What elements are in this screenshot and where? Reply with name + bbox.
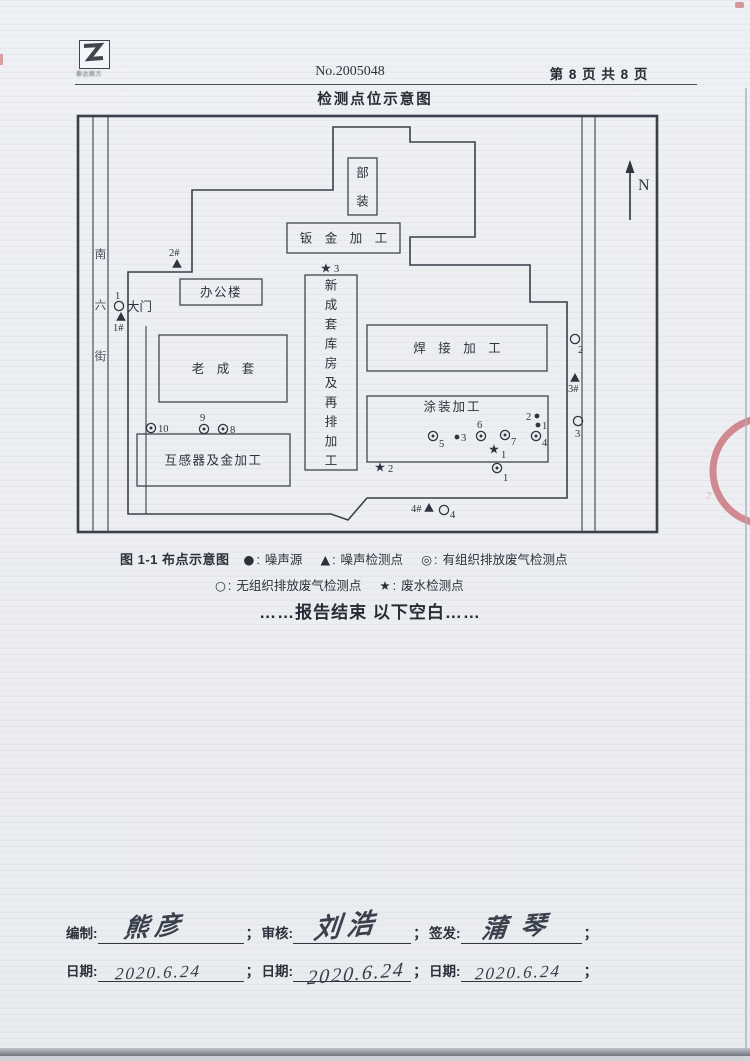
signoff-roles-row: 编制:熊彦；审核:刘浩；签发:蒲琴； [66,918,600,944]
role-label-1: 审核: [262,922,294,944]
north-arrow-head [626,160,635,173]
marker-circle: 1 [114,291,123,311]
open-circle-marker [439,505,448,514]
stamp-mark: 7 [704,490,712,503]
page-edge-right [745,88,747,1050]
marker-label: 2 [578,345,583,356]
role-label-2: 签发: [429,922,461,944]
street-name-char: 南 [95,247,107,261]
building-label: 办公楼 [200,285,242,300]
marker-dot: 3 [455,433,467,444]
date-line-0: 2020.6.24 [98,955,244,982]
marker-label: 4# [411,504,422,515]
building: 办公楼 [180,279,262,305]
marker-label: 3# [568,384,579,395]
marker-label: 1 [501,450,506,461]
legend-symbol: ● [244,552,255,567]
marker-label: 4 [450,510,456,521]
signature-line-1: 刘浩 [293,917,411,944]
separator: ； [244,922,262,944]
building: 焊 接 加 工 [367,325,547,371]
marker-label: 1 [503,473,508,484]
marker-label: 6 [477,420,482,431]
legend-label: 噪声检测点 [341,553,404,567]
building-label-char: 工 [325,454,338,468]
legend-item-2: ◎:有组织排放废气检测点 [421,553,567,567]
page-edge-bottom-shadow [0,1056,750,1061]
building-label-char: 及 [325,376,338,390]
marker-label: 8 [230,425,235,436]
building-label: 涂装加工 [423,399,481,414]
handwritten-date-0: 2020.6.24 [114,961,201,984]
building-label: 钣 金 加 工 [300,231,388,246]
red-stamp-arc: 17 [704,418,750,524]
double-circle-center [432,435,435,438]
triangle-marker [172,259,182,268]
double-circle-center [480,435,483,438]
marker-circle: 2 [570,334,583,356]
legend-label: 噪声源 [265,553,303,567]
marker-dcircle: 7 [500,430,516,448]
building: 涂装加工 [367,396,548,462]
legend-item-3: ○:无组织排放废气检测点 [215,579,361,593]
building: 新成套库房及再排加工 [305,275,357,470]
building: 老 成 套 [159,335,287,402]
building-label: 焊 接 加 工 [413,341,501,356]
handwritten-date-2: 2020.6.24 [474,961,561,984]
marker-star: ★3 [320,262,339,277]
marker-circle: 4 [439,505,456,521]
star-marker: ★ [374,461,386,476]
marker-label: 7 [511,437,516,448]
date-line-2: 2020.6.24 [461,955,582,982]
role-label-0: 编制: [66,922,98,944]
separator: ； [244,960,262,982]
legend-symbol: ◎ [421,552,432,567]
marker-triangle: 2# [169,248,182,268]
legend-symbol: ▲ [320,552,330,567]
separator: ； [411,922,429,944]
legend-label: 无组织排放废气检测点 [236,579,361,593]
triangle-marker [570,373,580,382]
marker-dcircle: 9 [199,413,208,434]
building-label: 互感器及金加工 [164,453,262,468]
marker-dcircle: 1 [492,463,508,484]
gate-label: 大门 [127,299,152,314]
legend-item-0: ●:噪声源 [244,553,303,567]
legend-colon: : [332,553,335,567]
separator: ； [411,960,429,982]
legend-colon: : [256,553,259,567]
building-label-char: 排 [325,415,338,429]
marker-label: 5 [439,439,444,450]
legend-label: 有组织排放废气检测点 [442,553,567,567]
building-label-char: 套 [325,316,338,331]
marker-label: 1 [115,291,120,302]
page-edge-bottom [0,1048,750,1056]
marker-dcircle: 5 [428,431,444,450]
handwritten-signature-2: 蒲琴 [480,904,562,946]
handwritten-signature-1: 刘浩 [312,900,382,947]
signoff-dates-row: 日期:2020.6.24；日期:2020.6.24；日期:2020.6.24； [66,956,600,982]
street-name-char: 街 [95,349,107,363]
figure-caption: 图 1-1 布点示意图 [120,552,230,567]
building-label-char: 成 [325,298,338,312]
marker-label: 3 [461,433,466,444]
legend-label: 废水检测点 [401,579,464,593]
building-label-char: 再 [325,395,338,409]
marker-dot: 2 [526,412,539,423]
double-circle-center [496,467,499,470]
separator: ； [582,922,600,944]
street-name-char: 六 [95,299,107,312]
building-label-char: 部 [356,165,369,180]
building-label-char: 新 [325,277,338,292]
noise-source-dot [535,414,540,419]
star-marker: ★ [488,443,500,458]
legend-item-4: ★:废水检测点 [379,579,463,593]
building: 部装 [348,158,377,215]
marker-triangle: 4# [411,503,434,515]
marker-label: 10 [158,424,169,435]
open-circle-marker [114,301,123,310]
marker-label: 2 [388,464,393,475]
legend-row-2: ○:无组织排放废气检测点★:废水检测点 [215,575,482,594]
marker-dot: 1 [536,421,548,432]
noise-source-dot [455,435,460,440]
marker-label: 4 [542,438,548,449]
building: 钣 金 加 工 [287,223,400,253]
building: 互感器及金加工 [137,434,290,486]
noise-source-dot [536,423,541,428]
open-circle-marker [570,334,579,343]
signature-line-2: 蒲琴 [461,917,582,944]
double-circle-center [222,428,225,431]
open-circle-marker [573,416,582,425]
handwritten-signature-0: 熊彦 [122,905,188,946]
scan-red-mark-left [0,54,3,65]
marker-label: 2 [526,412,531,423]
marker-label: 3 [575,429,580,440]
legend-colon: : [228,579,231,593]
separator: ； [582,960,600,982]
double-circle-center [150,427,153,430]
marker-dcircle: 4 [531,431,548,449]
legend-symbol: ★ [379,578,390,593]
end-of-report-note: ……报告结束 以下空白…… [0,598,740,623]
marker-label: 9 [200,413,205,424]
marker-label: 3 [334,264,339,275]
building-label-char: 加 [325,434,338,448]
legend-symbol: ○ [215,578,226,593]
marker-triangle: 1# [113,312,126,334]
marker-dcircle: 10 [146,423,168,435]
marker-triangle: 3# [568,373,580,395]
date-line-1: 2020.6.24 [293,955,411,982]
triangle-marker [116,312,126,321]
marker-dcircle: 6 [476,420,485,441]
date-label-0: 日期: [66,960,98,982]
building-label-char: 房 [325,355,338,370]
north-label: N [638,177,650,194]
legend-colon: : [393,579,396,593]
marker-star: ★2 [374,461,393,476]
date-label-2: 日期: [429,960,461,982]
building-label-char: 装 [356,194,369,208]
building-label: 老 成 套 [192,361,255,376]
triangle-marker [424,503,434,512]
marker-label: 1 [542,421,547,432]
star-marker: ★ [320,262,332,277]
double-circle-center [203,428,206,431]
legend-item-1: ▲:噪声检测点 [320,553,403,567]
scanned-page: 泰达图方 No.2005048 第 8 页 共 8 页 检测点位示意图 南六街部… [0,0,750,1061]
scan-red-mark-corner [735,2,744,8]
marker-label: 1# [113,323,124,334]
legend-colon: : [434,553,437,567]
double-circle-center [535,435,538,438]
marker-circle: 3 [573,416,582,440]
double-circle-center [504,434,507,437]
legend-row-1: 图 1-1 布点示意图●:噪声源▲:噪声检测点◎:有组织排放废气检测点 [120,549,585,568]
signature-line-0: 熊彦 [98,917,244,944]
date-label-1: 日期: [262,960,294,982]
marker-label: 2# [169,248,180,259]
marker-star: ★1 [488,443,506,462]
building-label-char: 库 [325,336,338,351]
